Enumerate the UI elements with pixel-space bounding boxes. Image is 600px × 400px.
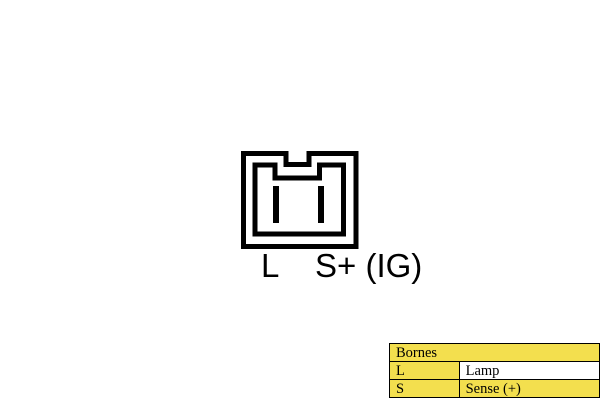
legend-description-cell: Sense (+) <box>459 380 599 398</box>
legend-row-l: L Lamp <box>390 362 600 380</box>
legend-description-cell: Lamp <box>459 362 599 380</box>
pin-label-s: S+ (IG) <box>315 249 422 283</box>
terminals-legend-table: Bornes L Lamp S Sense (+) <box>389 343 600 398</box>
pin-label-l: L <box>261 249 279 283</box>
legend-terminal-cell: S <box>390 380 460 398</box>
pin-l <box>273 186 279 223</box>
legend-header: Bornes <box>390 344 600 362</box>
legend-header-row: Bornes <box>390 344 600 362</box>
connector-diagram <box>239 148 363 252</box>
page: { "connector_diagram": { "pin_labels": [… <box>0 0 600 400</box>
connector-inner-outline <box>255 165 344 234</box>
pin-s <box>318 186 324 223</box>
legend-terminal-cell: L <box>390 362 460 380</box>
legend-row-s: S Sense (+) <box>390 380 600 398</box>
